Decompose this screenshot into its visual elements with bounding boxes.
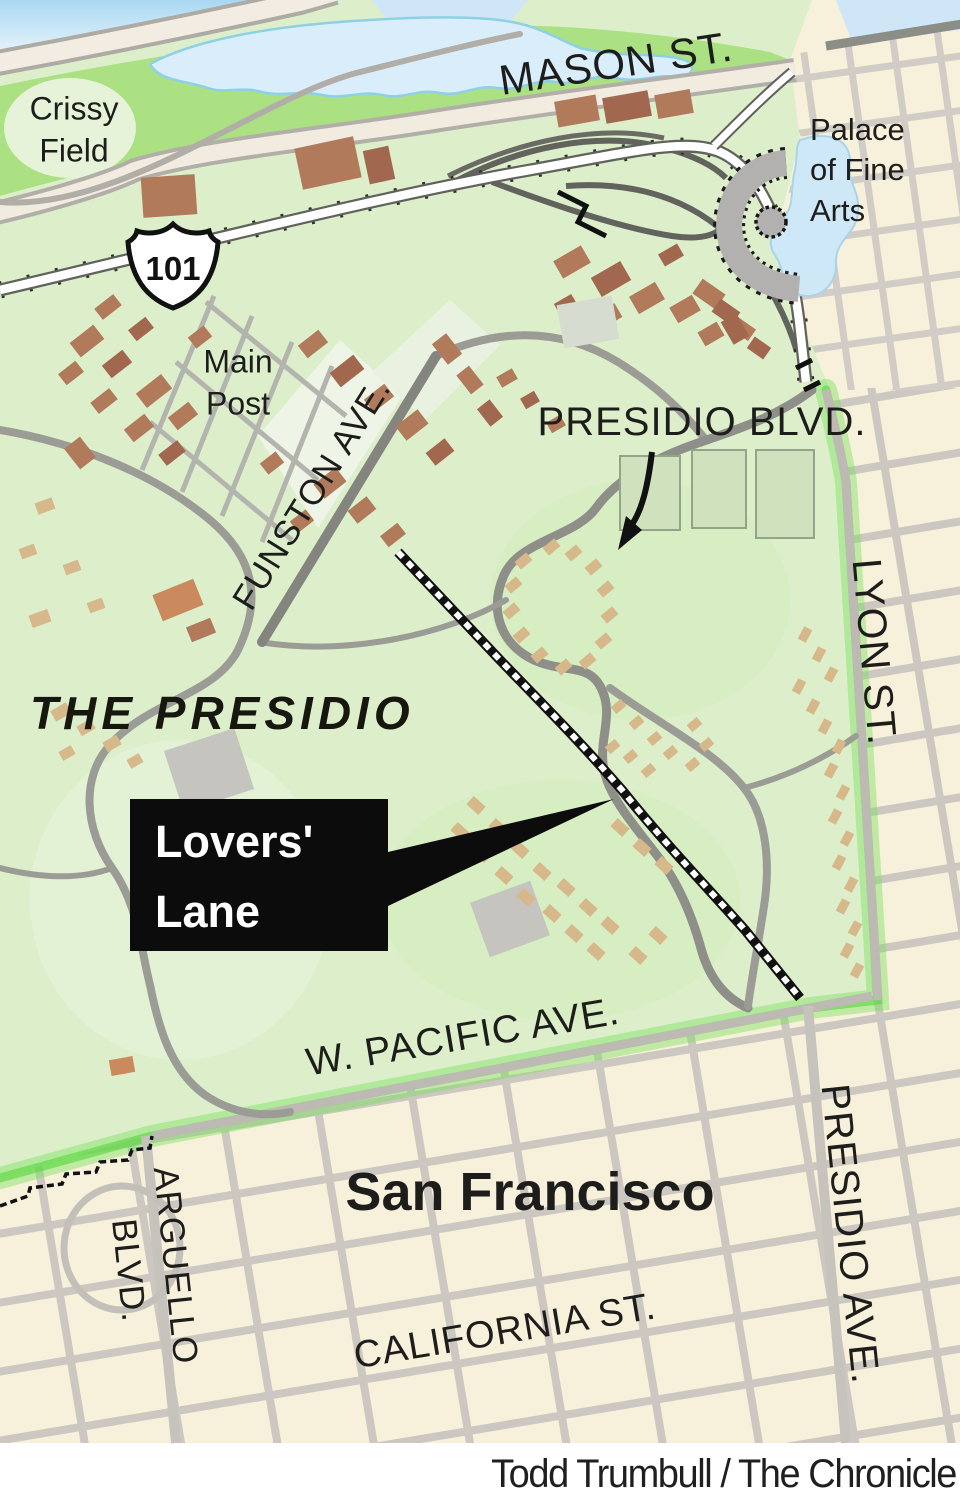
palace-rotunda-icon: [756, 207, 786, 237]
label-the-presidio: THE PRESIDIO: [30, 684, 415, 744]
label-main-post: Main Post: [203, 341, 272, 424]
label-palace-of-fine-arts: Palace of Fine Arts: [810, 110, 905, 231]
presidio-map-graphic: 101 Crissy Field MASON ST. Palace of Fin…: [0, 0, 960, 1507]
label-san-francisco: San Francisco: [345, 1157, 714, 1227]
credit-line: Todd Trumbull / The Chronicle: [48, 1448, 956, 1504]
map-canvas: 101 Crissy Field MASON ST. Palace of Fin…: [0, 0, 960, 1445]
lovers-lane-callout: Lovers' Lane: [130, 799, 388, 951]
us-101-shield-number: 101: [145, 250, 200, 287]
label-presidio-blvd: PRESIDIO BLVD.: [538, 396, 867, 448]
label-crissy-field: Crissy Field: [30, 88, 119, 171]
